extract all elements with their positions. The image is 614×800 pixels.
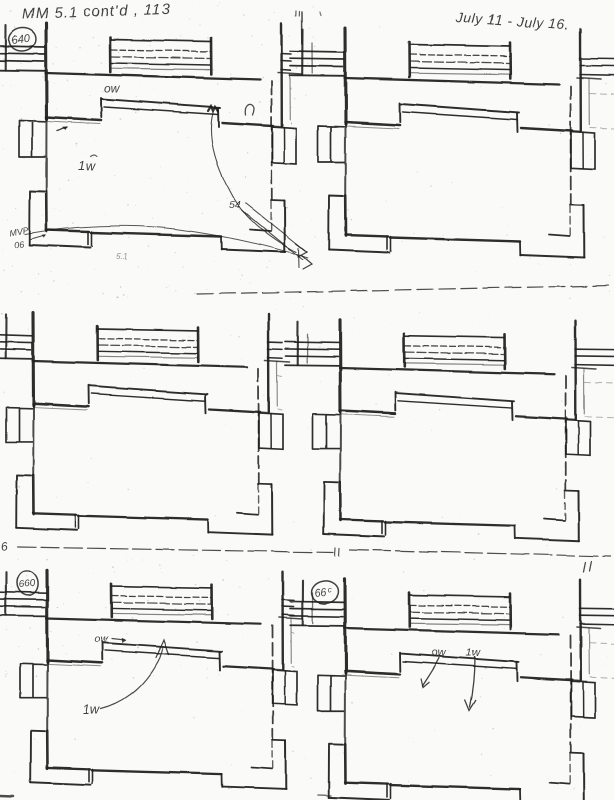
svg-text:640: 640 [11,33,31,47]
svg-text:1w: 1w [466,647,481,659]
svg-text:1w: 1w [78,158,96,173]
svg-text:ow: ow [94,633,109,645]
svg-text:66: 66 [314,587,327,600]
svg-text:ow: ow [432,647,447,659]
svg-text:06: 06 [14,239,25,250]
svg-text:1w: 1w [83,702,101,717]
svg-text:5.1: 5.1 [116,252,127,261]
svg-text:660: 660 [18,578,36,591]
svg-text:ow: ow [104,81,121,95]
